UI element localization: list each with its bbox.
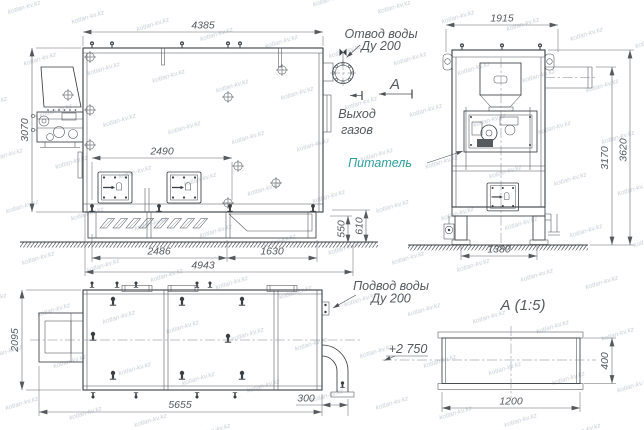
ground-hatch bbox=[20, 243, 378, 248]
water-inlet-label-line2: Ду 200 bbox=[369, 292, 411, 306]
dim-pipe-stub: 300 bbox=[297, 393, 315, 405]
drawing-sheet: kotlan-kv.kz kotlan-kv.kz bbox=[0, 0, 644, 430]
section-title: А (1:5) bbox=[499, 297, 545, 314]
dim-grate-section: 2486 bbox=[146, 246, 171, 258]
dim-base-length: 4943 bbox=[191, 260, 215, 272]
dim-height-duct: 3170 bbox=[599, 146, 611, 170]
dim-depth: 2095 bbox=[9, 328, 21, 353]
dim-overall-width: 4385 bbox=[191, 20, 215, 32]
elevation-value: +2 750 bbox=[389, 342, 428, 356]
dim-width: 1915 bbox=[490, 13, 514, 25]
dim-ground-h2: 610 bbox=[354, 217, 366, 235]
dim-height-overall: 3620 bbox=[618, 138, 630, 162]
dim-length: 5655 bbox=[168, 399, 192, 411]
water-outlet-label-line2: Ду 200 bbox=[359, 39, 401, 53]
feeder-label: Питатель bbox=[348, 156, 412, 170]
dim-section-width: 1200 bbox=[499, 396, 523, 408]
technical-drawing: kotlan-kv.kz kotlan-kv.kz bbox=[0, 0, 644, 430]
dim-ash-section: 1630 bbox=[260, 246, 284, 258]
dim-section-height: 400 bbox=[599, 352, 611, 370]
gas-outlet-label-line1: Выход bbox=[338, 107, 376, 121]
view-arrow-letter: А bbox=[389, 76, 400, 93]
dim-support-base: 1380 bbox=[487, 244, 511, 256]
dim-overall-height: 3070 bbox=[19, 118, 31, 142]
dim-ground-h1: 550 bbox=[336, 220, 348, 238]
dim-door-spacing: 2490 bbox=[149, 146, 174, 158]
gas-outlet-label-line2: газов bbox=[341, 123, 373, 137]
